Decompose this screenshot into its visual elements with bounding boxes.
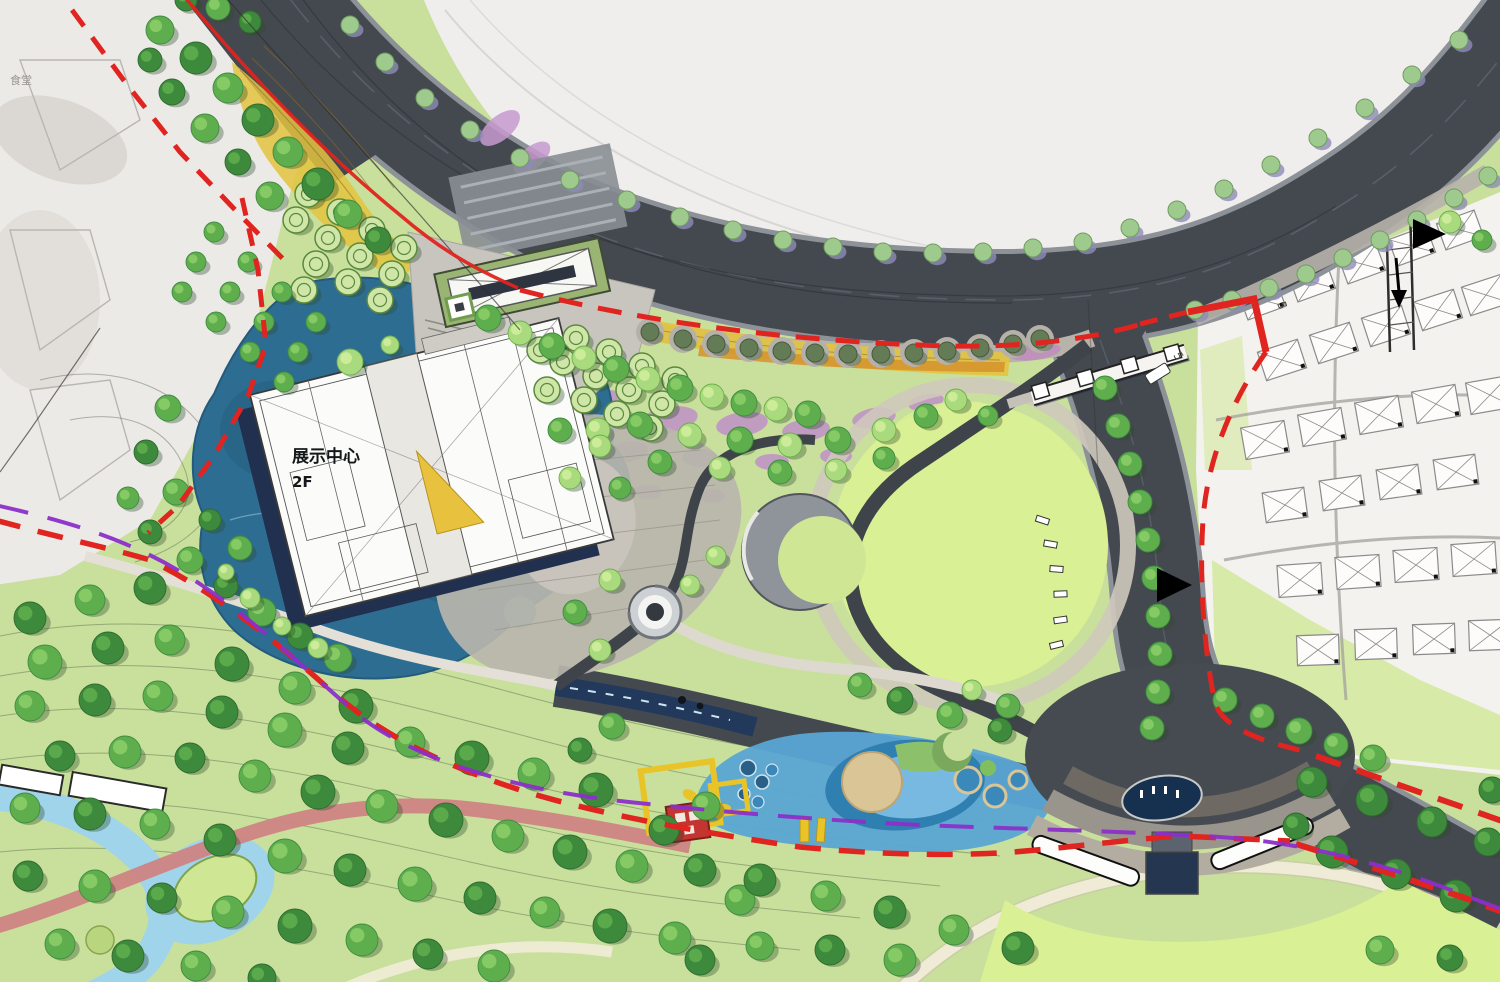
cad-house (1354, 628, 1397, 659)
cad-house (1298, 407, 1347, 446)
building-name-label: 展示中心 (292, 446, 360, 467)
cad-house (1412, 384, 1461, 423)
cad-house (1319, 475, 1365, 511)
cad-house (1393, 548, 1439, 583)
tree-icon (636, 318, 664, 346)
cad-house (1376, 464, 1422, 500)
cad-house (1355, 395, 1404, 434)
site-plan-svg: 食堂 (0, 0, 1500, 982)
tree-icon (801, 339, 829, 367)
tree-icon (768, 337, 796, 365)
canteen-label: 食堂 (10, 73, 32, 87)
kiosk (446, 294, 474, 321)
tree-icon (1026, 325, 1054, 353)
cad-house (1468, 619, 1500, 650)
cad-house (1262, 487, 1308, 523)
tree-icon (669, 325, 697, 353)
tree-icon (702, 330, 730, 358)
tree-icon (933, 337, 961, 365)
tree-icon (735, 334, 763, 362)
landscape-master-plan: 食堂 (0, 0, 1500, 982)
cad-house (1277, 563, 1323, 598)
cad-house (1433, 454, 1479, 490)
building-floors-label: 2F (292, 473, 313, 491)
cad-house (1335, 555, 1381, 590)
cad-house (1451, 542, 1497, 577)
cad-house (1296, 634, 1339, 665)
spiral-lookout (629, 586, 681, 638)
cad-house (1241, 420, 1290, 459)
cad-house (1412, 623, 1455, 654)
